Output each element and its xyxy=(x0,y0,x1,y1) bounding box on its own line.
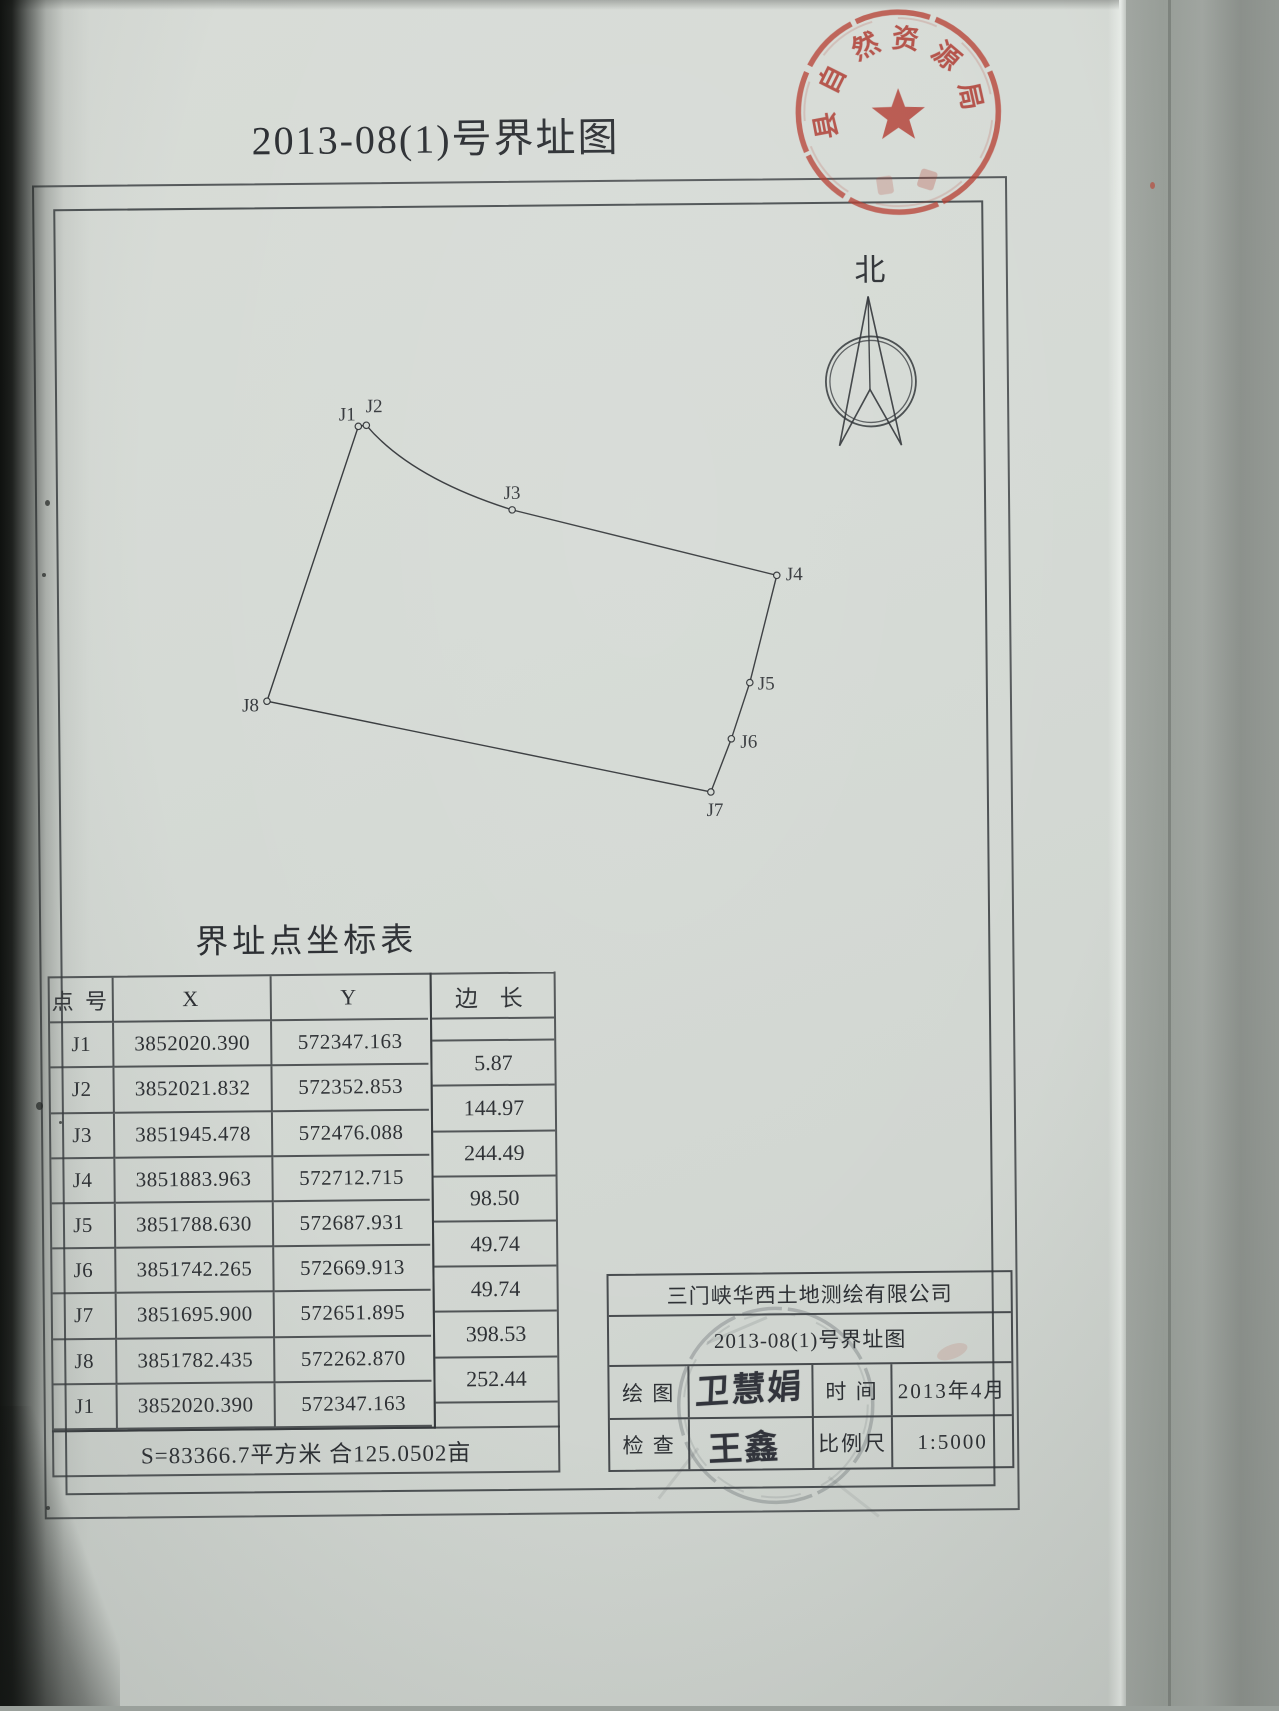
td-point-id: J1 xyxy=(54,1384,118,1430)
td-x: 3851782.435 xyxy=(117,1338,275,1385)
page-title: 2013-08(1)号界址图 xyxy=(220,105,651,167)
td-y: 572669.913 xyxy=(274,1246,430,1293)
td-x: 3851695.900 xyxy=(117,1293,275,1340)
document-sheet: 2013-08(1)号界址图 北 xyxy=(0,0,1137,1711)
td-y: 572476.088 xyxy=(273,1110,429,1157)
scale-label: 比例尺 xyxy=(814,1417,893,1468)
edge-spacer xyxy=(432,1019,554,1042)
td-y: 572347.163 xyxy=(276,1381,432,1428)
north-label: 北 xyxy=(842,244,898,290)
company-name: 三门峡华西土地测绘有限公司 xyxy=(608,1272,1010,1317)
area-summary: S=83366.7平方米 合125.0502亩 xyxy=(52,1425,560,1477)
td-edge-length: 252.44 xyxy=(435,1357,557,1403)
td-x: 3852020.390 xyxy=(118,1383,276,1430)
time-label: 时 间 xyxy=(813,1364,892,1416)
draw-label: 绘 图 xyxy=(609,1366,689,1418)
check-signature-cell: 王鑫 xyxy=(690,1418,814,1469)
check-label: 检 查 xyxy=(610,1419,690,1470)
td-y: 572347.163 xyxy=(272,1020,428,1067)
check-scale-row: 检 查 王鑫 比例尺 1:5000 xyxy=(610,1416,1012,1470)
td-edge-length: 144.97 xyxy=(433,1086,555,1132)
th-point-id: 点 号 xyxy=(50,978,114,1024)
td-point-id: J7 xyxy=(53,1294,117,1340)
photo-backdrop: 2013-08(1)号界址图 北 xyxy=(0,0,1279,1706)
scale-value: 1:5000 xyxy=(893,1416,1012,1467)
official-stamp: 县 自 然 资 源 局 xyxy=(789,3,1007,221)
document-paper: 2013-08(1)号界址图 北 xyxy=(0,0,1126,1706)
td-y: 572651.895 xyxy=(275,1291,431,1338)
td-x: 3851945.478 xyxy=(115,1112,273,1159)
td-x: 3852021.832 xyxy=(114,1067,272,1114)
draw-time-row: 绘 图 卫慧娟 时 间 2013年4月 xyxy=(609,1363,1011,1420)
td-point-id: J4 xyxy=(51,1158,115,1204)
td-y: 572712.715 xyxy=(273,1155,429,1202)
td-x: 3851788.630 xyxy=(116,1202,274,1249)
stamp-arc-char: 资 xyxy=(890,16,921,57)
th-edge-length: 边 长 xyxy=(432,974,554,1020)
th-y: Y xyxy=(272,975,428,1022)
red-speck xyxy=(1150,182,1155,189)
th-x: X xyxy=(114,976,272,1023)
td-point-id: J6 xyxy=(52,1249,116,1295)
td-edge-length: 98.50 xyxy=(434,1176,556,1222)
td-edge-length: 5.87 xyxy=(432,1041,554,1087)
td-y: 572262.870 xyxy=(275,1336,431,1383)
td-edge-length: 244.49 xyxy=(433,1131,555,1177)
draw-signature: 卫慧娟 xyxy=(695,1358,805,1414)
check-signature: 王鑫 xyxy=(707,1419,781,1471)
edge-length-column: 边 长 5.87 144.97 244.49 98.50 49.74 49.74… xyxy=(430,971,560,1428)
td-point-id: J8 xyxy=(53,1339,117,1385)
draw-signature-cell: 卫慧娟 xyxy=(689,1365,813,1417)
td-edge-length: 49.74 xyxy=(434,1221,556,1267)
td-x: 3851742.265 xyxy=(116,1247,274,1294)
coord-table: 点 号 X Y J1 3852020.390 572347.163 J2 385… xyxy=(48,973,436,1433)
td-x: 3851883.963 xyxy=(115,1157,273,1204)
title-block: 三门峡华西土地测绘有限公司 2013-08(1)号界址图 绘 图 卫慧娟 时 间… xyxy=(606,1270,1014,1472)
td-edge-length: 49.74 xyxy=(434,1267,556,1313)
coord-table-title: 界址点坐标表 xyxy=(161,912,451,963)
sheet-title: 2013-08(1)号界址图 xyxy=(609,1313,1011,1367)
backdrop-streak xyxy=(1168,0,1171,1706)
td-y: 572352.853 xyxy=(272,1065,428,1112)
td-point-id: J3 xyxy=(51,1113,115,1159)
td-point-id: J1 xyxy=(50,1023,114,1069)
td-edge-length: 398.53 xyxy=(435,1312,557,1358)
td-y: 572687.931 xyxy=(274,1201,430,1248)
time-value: 2013年4月 xyxy=(892,1363,1011,1415)
td-x: 3852020.390 xyxy=(114,1021,272,1068)
td-point-id: J2 xyxy=(50,1068,114,1114)
td-point-id: J5 xyxy=(52,1204,116,1250)
edge-spacer xyxy=(436,1402,558,1428)
stamp-star-icon xyxy=(872,88,926,139)
